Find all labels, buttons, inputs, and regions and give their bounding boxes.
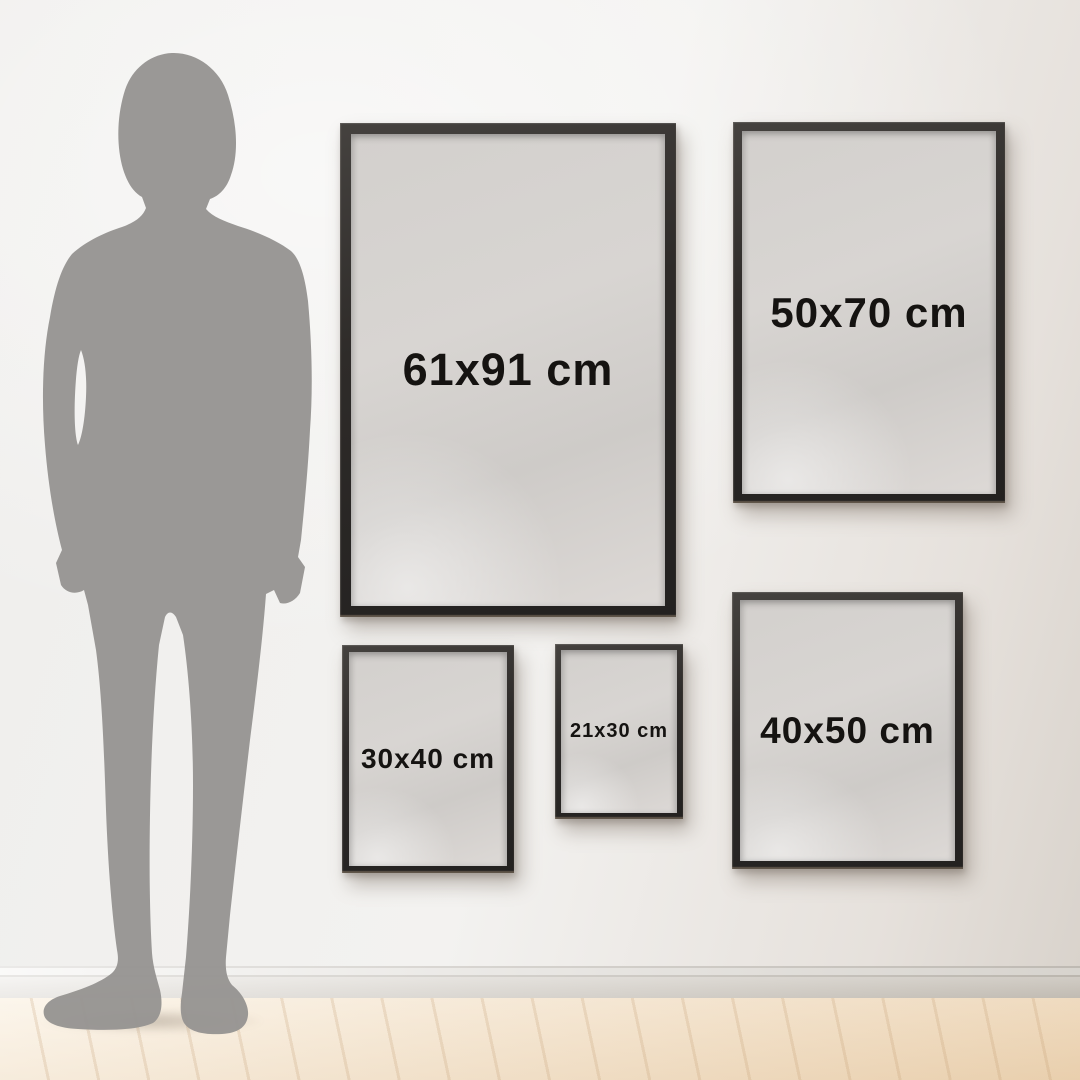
frame-21x30: 21x30 cm [555,644,683,819]
frame-size-guide-scene: 61x91 cm 50x70 cm 30x40 cm 21x30 cm 40x5… [0,0,1080,1080]
frame-40x50: 40x50 cm [732,592,963,869]
frame-50x70-size-label: 50x70 cm [770,289,967,337]
human-silhouette-icon [0,45,330,1040]
frame-21x30-size-label: 21x30 cm [570,720,668,743]
frame-30x40-mat: 30x40 cm [349,652,507,866]
frame-30x40: 30x40 cm [342,645,514,873]
frame-61x91-size-label: 61x91 cm [403,344,614,396]
frame-30x40-size-label: 30x40 cm [361,743,495,775]
frame-50x70: 50x70 cm [733,122,1005,503]
frame-40x50-mat: 40x50 cm [740,600,955,861]
frame-21x30-mat: 21x30 cm [561,650,677,813]
frame-50x70-mat: 50x70 cm [742,131,996,494]
frame-61x91-mat: 61x91 cm [351,134,665,606]
frame-61x91: 61x91 cm [340,123,676,617]
frame-40x50-size-label: 40x50 cm [760,710,935,752]
